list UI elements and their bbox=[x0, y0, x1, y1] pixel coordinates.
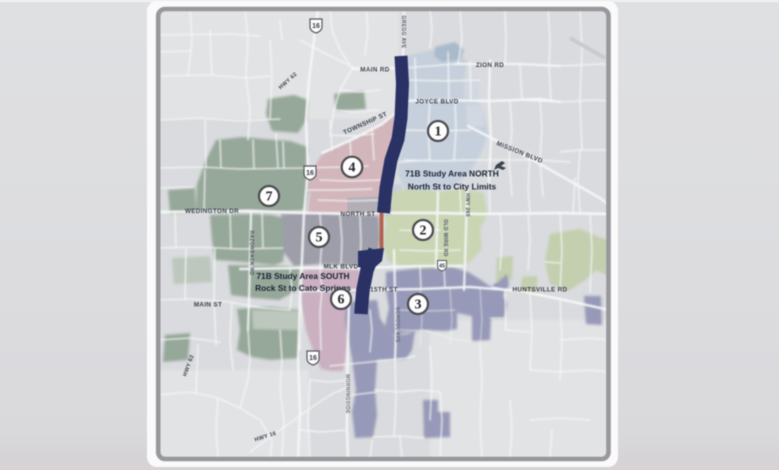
svg-text:71B Study Area NORTH: 71B Study Area NORTH bbox=[405, 169, 499, 179]
svg-text:SCHOOL AVE: SCHOOL AVE bbox=[394, 307, 400, 343]
svg-text:RAZORBACK RD: RAZORBACK RD bbox=[248, 230, 254, 275]
svg-text:15TH ST: 15TH ST bbox=[370, 287, 398, 294]
svg-text:71B Study Area SOUTH: 71B Study Area SOUTH bbox=[256, 271, 349, 281]
svg-text:3: 3 bbox=[415, 298, 422, 313]
svg-text:ZION RD: ZION RD bbox=[476, 62, 504, 69]
svg-text:1: 1 bbox=[435, 125, 442, 140]
svg-text:HUNTSVILLE RD: HUNTSVILLE RD bbox=[513, 287, 568, 294]
svg-text:4: 4 bbox=[349, 161, 356, 176]
svg-text:North St to City Limits: North St to City Limits bbox=[408, 182, 497, 192]
svg-text:OLD WIRE RD: OLD WIRE RD bbox=[442, 219, 448, 256]
svg-text:JOYCE BLVD: JOYCE BLVD bbox=[415, 99, 458, 106]
svg-text:16: 16 bbox=[306, 170, 314, 177]
svg-text:MORNINGSIDE: MORNINGSIDE bbox=[344, 374, 350, 414]
svg-text:16: 16 bbox=[312, 23, 320, 30]
svg-text:7: 7 bbox=[266, 190, 273, 205]
svg-text:2: 2 bbox=[420, 224, 427, 239]
svg-text:MAIN RD: MAIN RD bbox=[360, 67, 389, 74]
svg-text:HWY 265: HWY 265 bbox=[464, 193, 470, 217]
svg-text:NORTH ST: NORTH ST bbox=[341, 211, 376, 218]
svg-text:5: 5 bbox=[316, 231, 323, 246]
svg-text:45: 45 bbox=[439, 264, 445, 270]
svg-text:MAIN ST: MAIN ST bbox=[194, 302, 222, 309]
svg-text:GREGG AVE: GREGG AVE bbox=[400, 16, 406, 49]
svg-text:6: 6 bbox=[338, 293, 345, 308]
svg-text:WEDINGTON DR: WEDINGTON DR bbox=[185, 208, 239, 215]
svg-text:MLK BLVD: MLK BLVD bbox=[324, 264, 359, 271]
svg-text:16: 16 bbox=[309, 355, 317, 362]
